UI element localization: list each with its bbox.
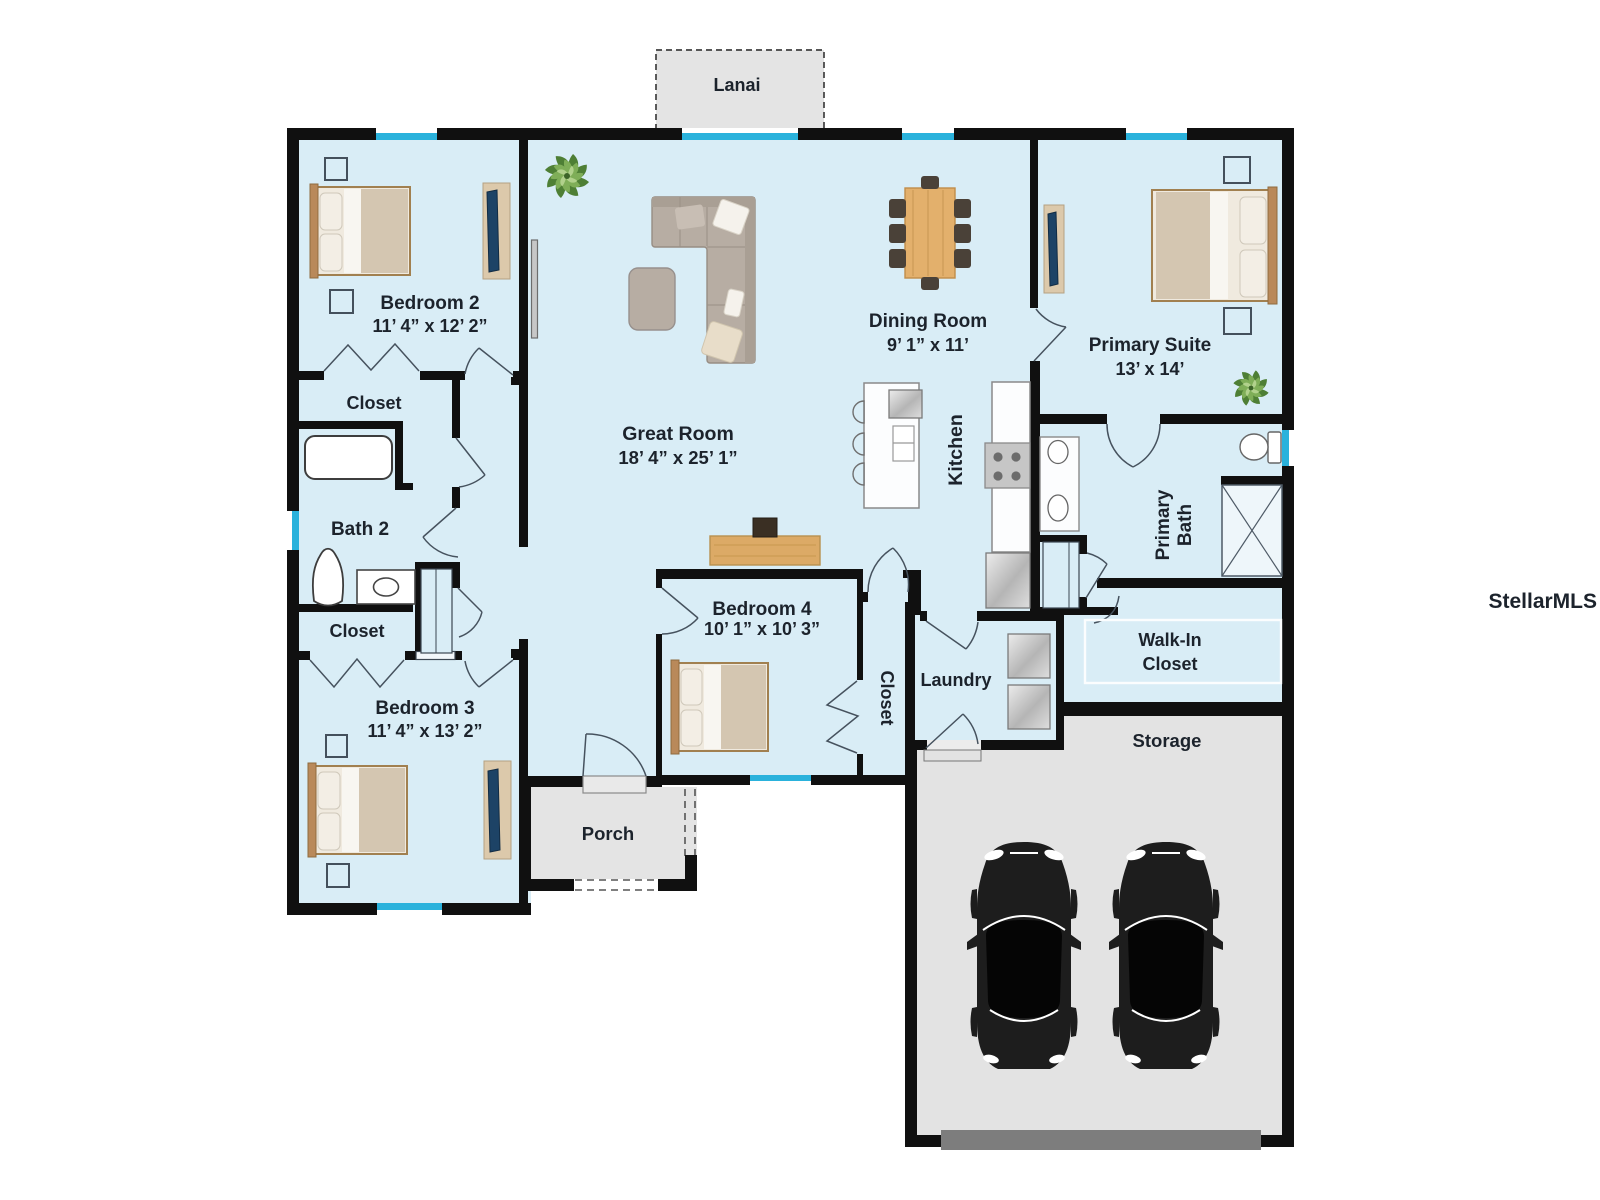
svg-text:Great Room: Great Room: [622, 423, 734, 445]
svg-text:Bedroom 3: Bedroom 3: [375, 698, 474, 719]
svg-text:Kitchen: Kitchen: [945, 414, 967, 486]
svg-text:Closet: Closet: [329, 621, 384, 641]
svg-text:Storage: Storage: [1133, 730, 1202, 751]
svg-text:Primary: Primary: [1153, 489, 1174, 560]
svg-text:9’ 1” x 11’: 9’ 1” x 11’: [887, 335, 969, 355]
svg-text:Bedroom 2: Bedroom 2: [380, 293, 479, 314]
svg-text:Bath 2: Bath 2: [331, 519, 389, 540]
svg-text:Closet: Closet: [877, 670, 897, 725]
svg-text:13’ x 14’: 13’ x 14’: [1115, 359, 1184, 379]
svg-text:11’ 4” x 13’ 2”: 11’ 4” x 13’ 2”: [367, 721, 482, 741]
svg-text:Walk-In: Walk-In: [1138, 630, 1201, 650]
svg-text:Closet: Closet: [346, 393, 401, 413]
svg-text:Laundry: Laundry: [920, 670, 991, 690]
svg-text:Closet: Closet: [1142, 654, 1197, 674]
svg-text:Primary Suite: Primary Suite: [1089, 335, 1212, 356]
svg-text:Bedroom 4: Bedroom 4: [712, 599, 812, 620]
svg-text:Dining Room: Dining Room: [869, 311, 987, 332]
svg-text:11’ 4” x 12’ 2”: 11’ 4” x 12’ 2”: [372, 316, 487, 336]
svg-text:Lanai: Lanai: [713, 75, 760, 95]
svg-text:10’ 1” x 10’ 3”: 10’ 1” x 10’ 3”: [704, 619, 820, 639]
svg-text:Bath: Bath: [1175, 504, 1196, 546]
svg-text:StellarMLS: StellarMLS: [1488, 590, 1597, 613]
svg-text:18’ 4” x 25’ 1”: 18’ 4” x 25’ 1”: [618, 447, 737, 468]
svg-text:Porch: Porch: [582, 823, 634, 844]
